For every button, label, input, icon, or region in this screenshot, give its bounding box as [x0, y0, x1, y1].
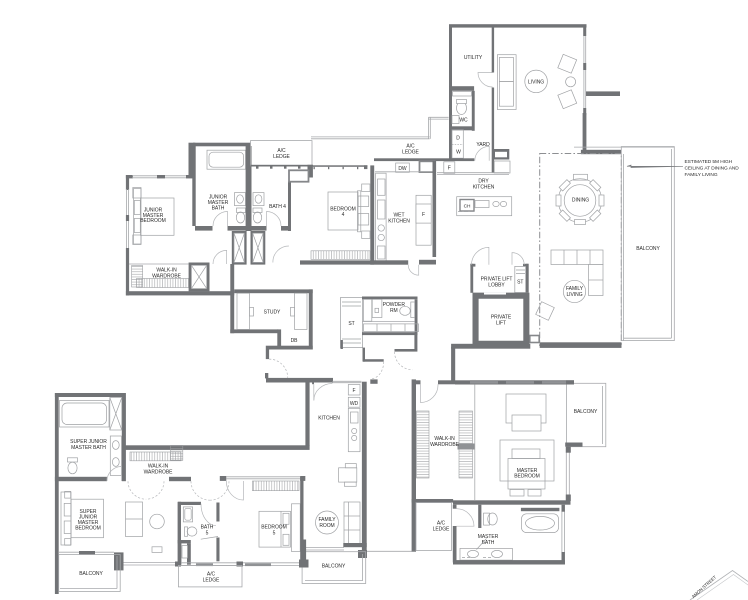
svg-text:BATH 4: BATH 4 — [269, 204, 286, 210]
svg-text:LIVING: LIVING — [566, 292, 582, 298]
svg-text:WC: WC — [459, 118, 468, 124]
svg-text:WD: WD — [350, 401, 359, 407]
svg-text:RM: RM — [390, 308, 398, 314]
svg-text:5: 5 — [273, 531, 276, 537]
svg-text:5: 5 — [206, 531, 209, 537]
svg-text:DW: DW — [398, 166, 407, 172]
svg-text:WARDROBE: WARDROBE — [152, 274, 182, 280]
svg-text:LOBBY: LOBBY — [488, 283, 505, 289]
svg-text:DB: DB — [291, 338, 299, 344]
svg-text:F: F — [422, 212, 425, 218]
svg-text:LIVING: LIVING — [528, 79, 544, 85]
svg-text:ROOM: ROOM — [319, 523, 334, 529]
svg-text:BEDROOM: BEDROOM — [140, 218, 166, 224]
svg-text:LIFT: LIFT — [496, 321, 506, 327]
svg-text:4: 4 — [342, 212, 345, 218]
svg-text:F: F — [352, 388, 355, 394]
svg-text:WARDROBE: WARDROBE — [430, 442, 460, 448]
svg-text:UTILITY: UTILITY — [464, 55, 483, 61]
svg-text:CEILING AT DINING AND: CEILING AT DINING AND — [685, 166, 740, 172]
svg-text:ESTIMATED 5M HIGH: ESTIMATED 5M HIGH — [685, 159, 733, 165]
svg-text:FAMILY LIVING: FAMILY LIVING — [685, 172, 718, 178]
svg-text:LEDGE: LEDGE — [433, 527, 450, 533]
svg-text:LEDGE: LEDGE — [402, 150, 419, 156]
svg-text:LEDGE: LEDGE — [273, 154, 290, 160]
svg-text:ST: ST — [348, 321, 354, 327]
svg-text:KITCHEN: KITCHEN — [388, 218, 410, 224]
svg-text:AMON STREET: AMON STREET — [691, 574, 718, 599]
svg-text:BATH: BATH — [482, 540, 495, 546]
svg-text:BEDROOM: BEDROOM — [75, 526, 101, 532]
svg-text:DINING: DINING — [572, 198, 589, 204]
svg-text:D: D — [456, 136, 460, 142]
svg-text:LEDGE: LEDGE — [203, 578, 220, 584]
svg-text:MASTER BATH: MASTER BATH — [71, 445, 106, 451]
svg-text:BALCONY: BALCONY — [322, 564, 346, 570]
svg-text:STUDY: STUDY — [264, 310, 281, 316]
svg-text:BEDROOM: BEDROOM — [514, 474, 540, 480]
svg-text:WARDROBE: WARDROBE — [144, 470, 174, 476]
svg-text:F: F — [448, 166, 451, 172]
svg-text:BALCONY: BALCONY — [79, 571, 103, 577]
svg-text:KITCHEN: KITCHEN — [473, 185, 495, 191]
svg-text:CH: CH — [464, 204, 471, 210]
svg-text:BALCONY: BALCONY — [574, 409, 598, 415]
svg-text:ST: ST — [517, 280, 523, 286]
svg-text:YARD: YARD — [476, 142, 490, 148]
svg-text:KITCHEN: KITCHEN — [318, 416, 340, 422]
svg-text:W: W — [456, 149, 461, 155]
svg-text:BATH: BATH — [212, 206, 225, 212]
svg-text:BALCONY: BALCONY — [636, 246, 660, 252]
